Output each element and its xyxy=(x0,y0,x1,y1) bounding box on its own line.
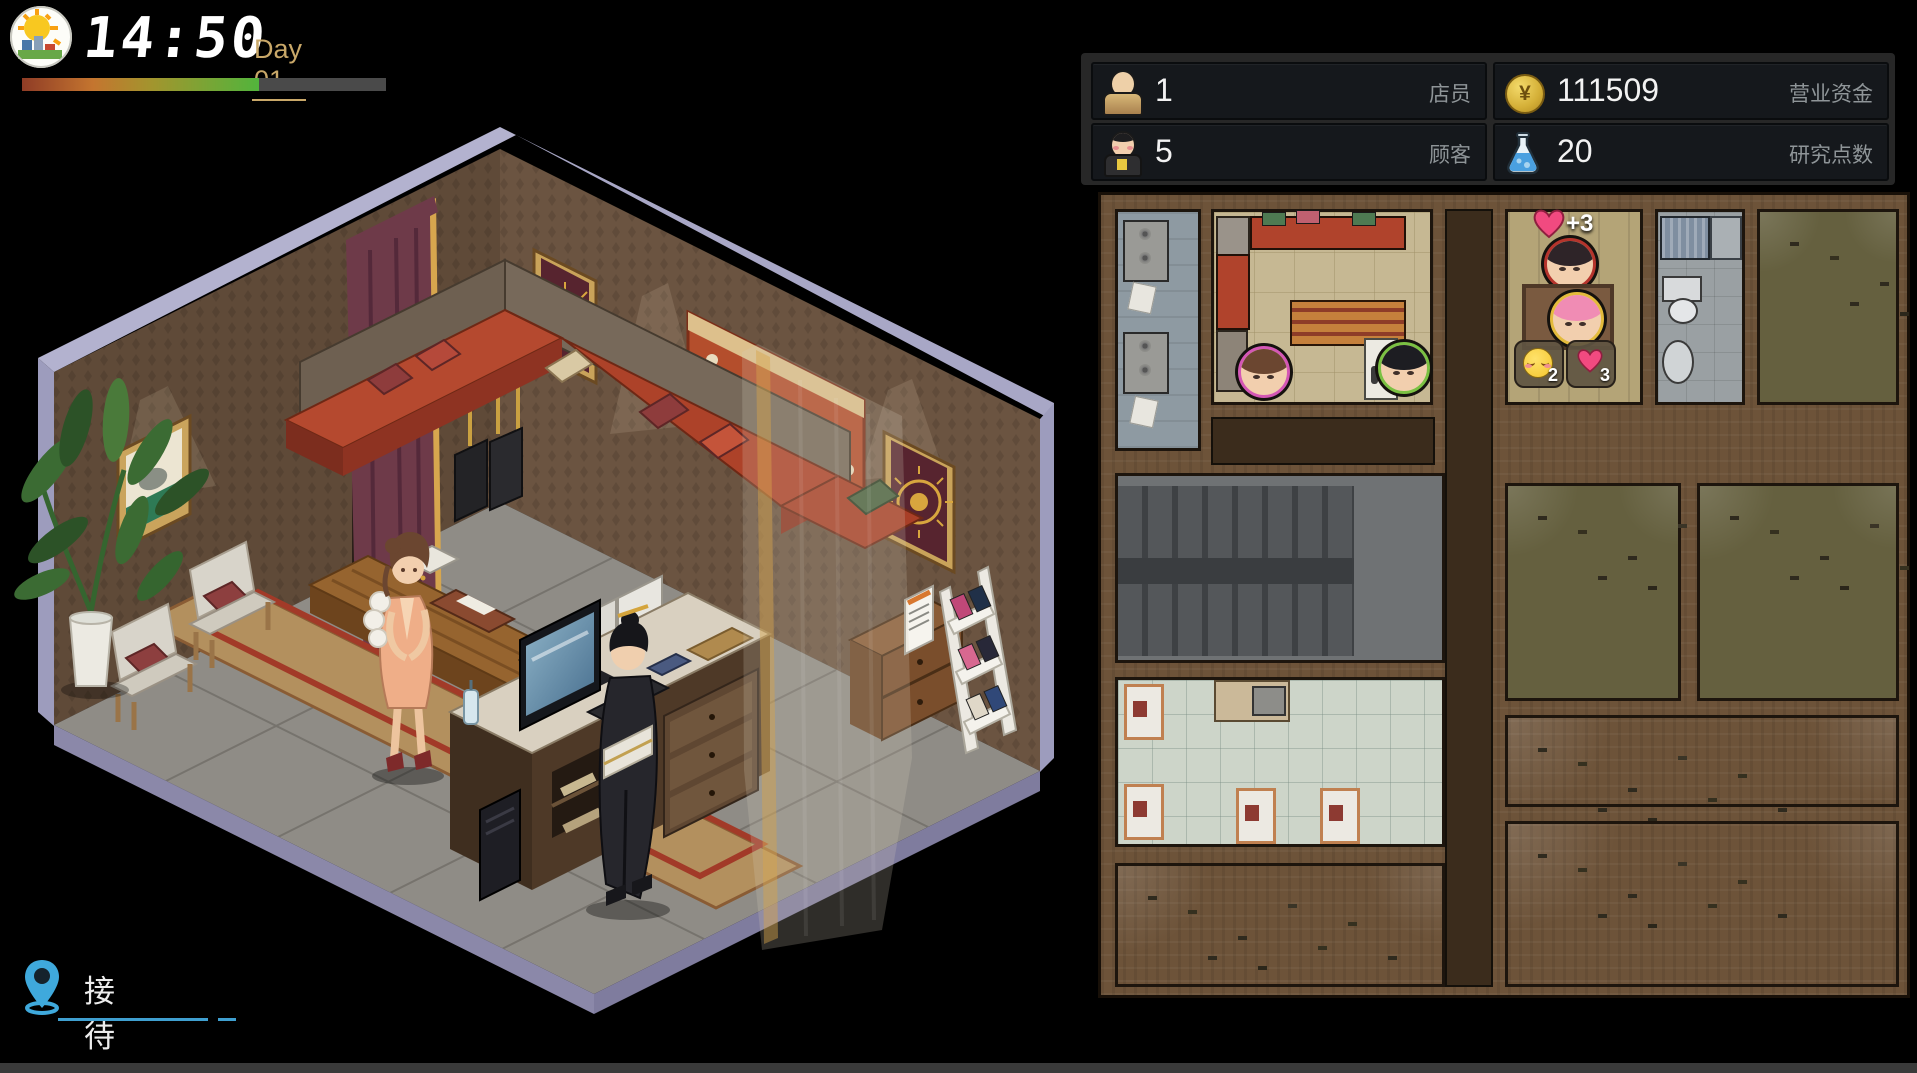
funds-amount: 111509 xyxy=(1557,72,1659,109)
stat-research[interactable]: 20 研究点数 xyxy=(1493,123,1889,181)
avatar-receptionist[interactable] xyxy=(1238,346,1290,398)
minimap-room-empty[interactable] xyxy=(1505,483,1681,701)
avatar-staff[interactable] xyxy=(1378,342,1430,394)
research-count: 20 xyxy=(1557,133,1593,170)
funds-label: 营业资金 xyxy=(1789,78,1873,108)
towel-icon xyxy=(1296,210,1320,224)
heart-badge: 3 xyxy=(1566,340,1616,388)
toilet-icon xyxy=(1662,276,1702,302)
floorplan-minimap[interactable]: +3 2 3 xyxy=(1098,192,1910,998)
location-underline-dash xyxy=(218,1018,236,1021)
minimap-corridor xyxy=(1211,417,1435,465)
stove-icon xyxy=(1123,220,1169,282)
towel-icon xyxy=(1352,212,1376,226)
minimap-room-empty[interactable] xyxy=(1505,715,1899,807)
stove-icon xyxy=(1123,332,1169,394)
counter-icon xyxy=(1214,680,1290,722)
minimap-room-empty[interactable] xyxy=(1505,821,1899,987)
shower-panel-icon xyxy=(1710,216,1742,260)
stat-customers[interactable]: 5 顾客 xyxy=(1091,123,1487,181)
location-underline xyxy=(58,1018,208,1021)
heart-icon xyxy=(1532,208,1566,240)
bottom-edge-bar xyxy=(0,1063,1917,1073)
sink-icon xyxy=(1662,340,1694,384)
staff-avatar-icon xyxy=(1101,70,1141,114)
minimap-room-spa[interactable] xyxy=(1115,677,1445,847)
paper-icon xyxy=(1127,282,1156,314)
game-screen: 14:50 Day 01 1 店员 ¥ 111509 营业资金 5 xyxy=(0,0,1917,1073)
sheer-curtain xyxy=(742,344,912,950)
staff-count: 1 xyxy=(1155,72,1173,109)
shelf-icon xyxy=(1216,216,1250,256)
paper-icon xyxy=(1129,396,1158,428)
bench-icon xyxy=(1124,784,1164,840)
time-progress-fill xyxy=(22,78,259,91)
stairs-landing xyxy=(1118,558,1354,584)
bench-icon xyxy=(1236,788,1276,844)
flask-icon xyxy=(1503,131,1543,175)
location-indicator: 接待室 xyxy=(22,958,62,1021)
customer-label: 顾客 xyxy=(1429,139,1471,169)
reception-room-scene[interactable] xyxy=(0,0,1100,1073)
minimap-room-empty[interactable] xyxy=(1757,209,1899,405)
research-label: 研究点数 xyxy=(1789,139,1873,169)
customer-avatar-icon xyxy=(1101,131,1141,175)
minimap-stairwell[interactable] xyxy=(1115,473,1445,663)
minimap-room-empty[interactable] xyxy=(1697,483,1899,701)
minimap-corridor xyxy=(1445,209,1493,987)
stat-staff[interactable]: 1 店员 xyxy=(1091,62,1487,120)
stats-panel: 1 店员 ¥ 111509 营业资金 5 顾客 xyxy=(1081,53,1895,185)
towel-icon xyxy=(1262,212,1286,226)
daytime-icon xyxy=(10,6,72,68)
minimap-room-kitchen[interactable] xyxy=(1115,209,1201,451)
avatar-masseuse[interactable] xyxy=(1544,238,1596,290)
coin-icon: ¥ xyxy=(1503,70,1543,114)
heart-gain-value: +3 xyxy=(1566,210,1593,238)
shower-icon xyxy=(1660,216,1710,260)
minimap-room-empty[interactable] xyxy=(1115,863,1445,987)
minimap-room-bathroom[interactable] xyxy=(1655,209,1745,405)
customer-count: 5 xyxy=(1155,133,1173,170)
minimap-room-reception[interactable] xyxy=(1211,209,1433,405)
stat-funds[interactable]: ¥ 111509 营业资金 xyxy=(1493,62,1889,120)
mood-badge: 2 xyxy=(1514,340,1564,388)
minimap-room-massage[interactable]: +3 2 3 xyxy=(1505,209,1643,405)
sofa-icon xyxy=(1216,254,1250,330)
location-pin-icon xyxy=(22,958,62,1016)
time-progress-bar xyxy=(22,78,386,91)
bench-icon xyxy=(1124,684,1164,740)
clock-time: 14:50 xyxy=(81,6,271,71)
avatar-customer[interactable] xyxy=(1550,292,1604,346)
bench-icon xyxy=(1320,788,1360,844)
staff-label: 店员 xyxy=(1429,78,1471,108)
